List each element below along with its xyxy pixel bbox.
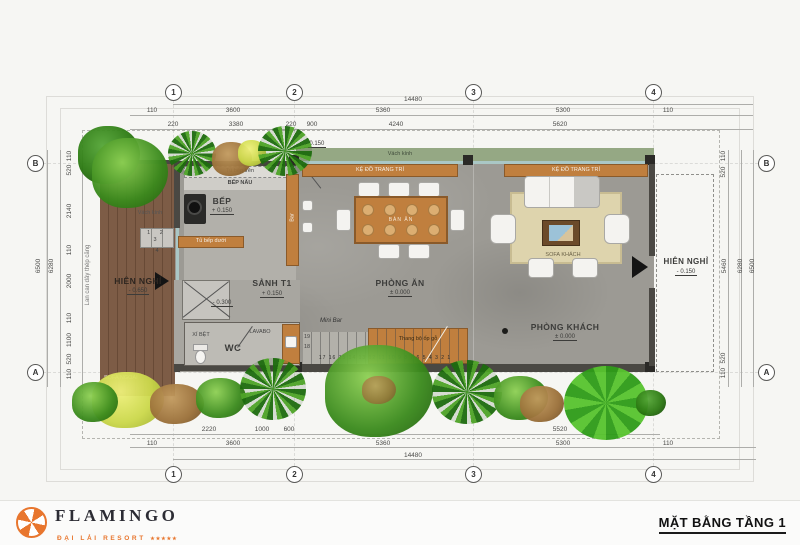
dim-label: 6500 <box>749 251 757 281</box>
grid-bubble-4-top: 4 <box>645 84 662 101</box>
dim-label: 5620 <box>530 121 590 129</box>
dining-chair <box>450 209 465 231</box>
room-label-deck: HIÊN NGHỈ <box>103 276 173 286</box>
dining-table-label: BÀN ĂN <box>380 217 422 223</box>
deck-step-numbers: 1 2 3 <box>141 230 173 244</box>
cooktop-label: BẾP NẤU <box>184 180 296 187</box>
hall-elevation: + 0.150 <box>260 291 284 298</box>
toilet-label: XÍ BỆT <box>184 332 218 339</box>
plant <box>240 358 306 420</box>
slab-joint <box>473 163 474 372</box>
dim-label: 5460 <box>721 251 729 281</box>
floor-plan-sheet: 14480 110 3600 5360 5300 110 220 3380 22… <box>0 0 800 545</box>
plan-title: MẶT BẰNG TẦNG 1 <box>659 515 786 534</box>
sofa-rug-label: SOFA KHÁCH <box>528 252 598 259</box>
room-label-living: PHÒNG KHÁCH <box>520 322 610 332</box>
brand-subtitle-row: ĐẠI LẢI RESORT ★★★★★ <box>57 527 178 545</box>
dim-label: 110 <box>66 238 74 262</box>
dim-label: 2000 <box>66 266 74 296</box>
dim-label: 5360 <box>353 440 413 448</box>
dim-line <box>130 129 753 130</box>
exit-arrow-icon <box>632 256 648 278</box>
grid-bubble-3-top: 3 <box>465 84 482 101</box>
dim-label: 5300 <box>533 107 593 115</box>
grid-bubble-b-right: B <box>758 155 775 172</box>
grid-bubble-b-left: B <box>27 155 44 172</box>
dim-line <box>173 459 756 460</box>
dim-label: 520 <box>66 158 74 182</box>
stair-number-18: 18 <box>302 344 312 351</box>
grid-bubble-4-bottom: 4 <box>645 466 662 483</box>
grid-bubble-1-top: 1 <box>165 84 182 101</box>
room-label-dining: PHÒNG ĂN <box>365 278 435 288</box>
deck-step-number-4: 4 <box>152 248 162 255</box>
plant <box>168 131 216 176</box>
railing-label: Lan can dây thép căng <box>84 239 92 311</box>
dim-label: 110 <box>720 361 728 385</box>
grid-bubble-2-bottom: 2 <box>286 466 303 483</box>
dim-label: 6500 <box>35 251 43 281</box>
grid-bubble-3-bottom: 3 <box>465 466 482 483</box>
grid-bubble-a-right: A <box>758 364 775 381</box>
plate-row <box>362 224 440 236</box>
dining-chair <box>418 182 440 197</box>
room-label-kitchen: BẾP <box>192 196 252 206</box>
dim-label: 110 <box>66 362 74 386</box>
bar-stool <box>302 222 313 233</box>
entry-elevation: - 0.300 <box>211 300 234 307</box>
wall-segment-right <box>649 164 655 256</box>
bar-label: Bar <box>290 204 297 232</box>
dim-label: 14480 <box>383 452 443 460</box>
dim-label: 110 <box>656 107 680 115</box>
dim-label: 3600 <box>203 107 263 115</box>
dim-label: 520 <box>720 160 728 184</box>
sofa <box>524 176 600 208</box>
toilet-bowl <box>195 350 206 364</box>
dim-line <box>82 150 83 387</box>
ottoman <box>572 258 598 278</box>
dim-line <box>173 104 753 105</box>
dim-label: 6280 <box>737 251 745 281</box>
dim-label: 3380 <box>206 121 266 129</box>
title-block: FLAMINGO ĐẠI LẢI RESORT ★★★★★ MẶT BẰNG T… <box>0 500 800 545</box>
dim-label: 4240 <box>366 121 426 129</box>
flamingo-logo-icon <box>16 507 47 538</box>
handrail-post <box>502 328 508 334</box>
dim-label: 600 <box>272 426 306 434</box>
armchair <box>604 214 630 244</box>
grid-bubble-1-bottom: 1 <box>165 466 182 483</box>
armchair <box>490 214 516 244</box>
dining-chair <box>378 244 400 259</box>
room-label-porch-right: HIÊN NGHỈ <box>655 257 717 266</box>
dim-label: 110 <box>656 440 680 448</box>
bar-stool <box>302 200 313 211</box>
dim-label: 220 <box>161 121 185 129</box>
kitchen-elevation: + 0.150 <box>210 208 234 215</box>
brand-subtitle: ĐẠI LẢI RESORT <box>57 535 146 542</box>
brand-stars: ★★★★★ <box>150 536 177 542</box>
living-elevation: ± 0.000 <box>553 334 577 341</box>
grid-bubble-2-top: 2 <box>286 84 303 101</box>
decor-shelf-label: KỆ ĐỒ TRANG TRÍ <box>504 167 648 174</box>
glass-wall-label-top: Vách kính <box>370 151 430 158</box>
glass-wall-label: Vách kính <box>128 210 172 217</box>
mini-bar-label: Mini Bar <box>320 318 360 324</box>
dim-line <box>130 115 753 116</box>
plate-row <box>362 204 440 216</box>
dim-label: 14480 <box>383 96 443 104</box>
dim-label: 110 <box>140 107 164 115</box>
stair-label: Thang bộ ốp gỗ <box>374 336 462 343</box>
deck-elevation: - 0.650 <box>127 288 150 295</box>
coffee-table-decor <box>549 225 573 241</box>
dining-elevation: ± 0.000 <box>388 290 412 297</box>
lower-cabinet-label: Tủ bếp dưới <box>178 238 244 245</box>
room-label-hall: SẢNH T1 <box>242 278 302 288</box>
dining-chair <box>388 182 410 197</box>
dim-label: 2140 <box>66 196 74 226</box>
wall-segment <box>174 164 180 228</box>
plant <box>258 126 312 176</box>
porch-right-elevation: - 0.150 <box>675 269 698 276</box>
dim-label: 3600 <box>203 440 263 448</box>
dim-label: 110 <box>140 440 164 448</box>
room-label-wc: WC <box>218 343 248 354</box>
sink <box>285 336 297 348</box>
dim-label: 900 <box>297 121 327 129</box>
dining-chair <box>408 244 430 259</box>
dim-label: 5360 <box>353 107 413 115</box>
ottoman <box>528 258 554 278</box>
wall-segment-right <box>649 288 655 366</box>
decor-shelf-label: KỆ ĐỒ TRANG TRÍ <box>302 167 458 174</box>
dim-label: 6280 <box>48 251 56 281</box>
stair-number-19: 19 <box>302 334 312 341</box>
dim-label: 2220 <box>184 426 234 434</box>
dining-chair <box>336 209 351 231</box>
brand-name: FLAMINGO <box>55 506 178 526</box>
dim-line <box>60 150 61 387</box>
plant <box>432 360 502 424</box>
dim-label: 5300 <box>533 440 593 448</box>
grid-bubble-a-left: A <box>27 364 44 381</box>
dining-chair <box>358 182 380 197</box>
column <box>463 155 473 165</box>
